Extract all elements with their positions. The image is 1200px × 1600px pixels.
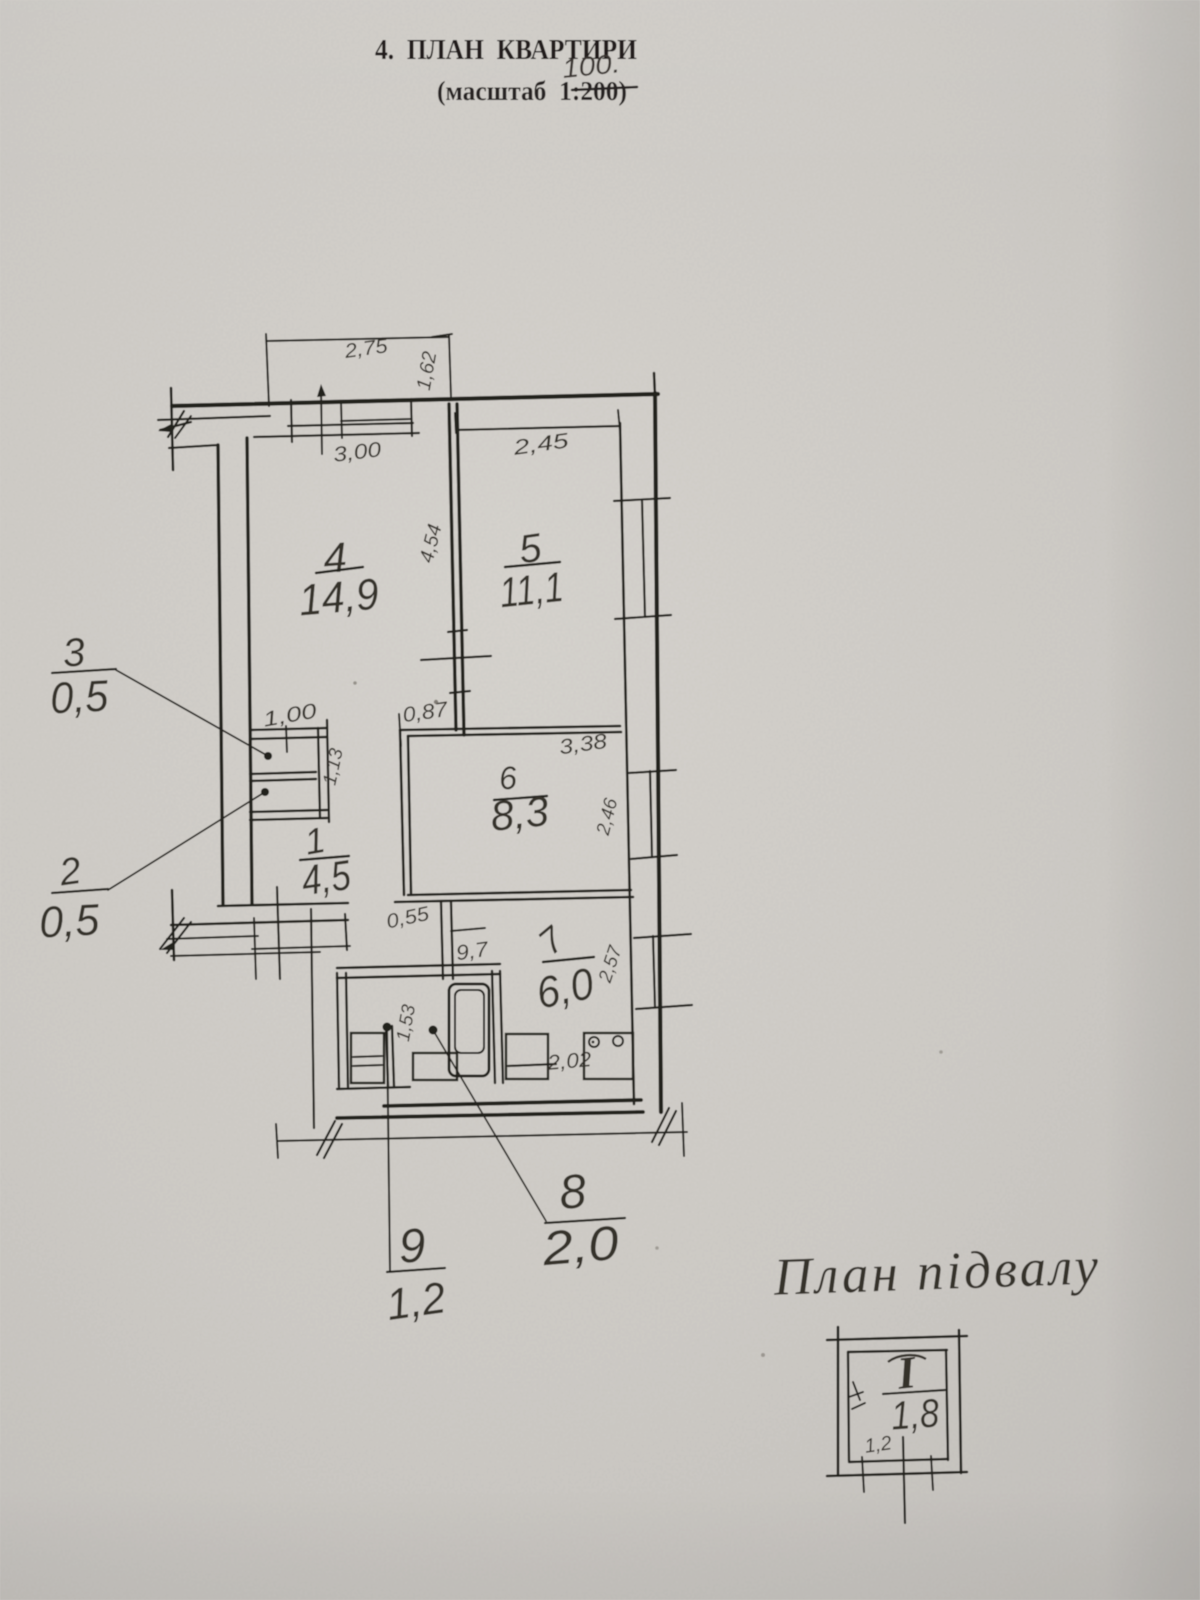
svg-text:1,2: 1,2 <box>383 1273 448 1330</box>
svg-text:2,02: 2,02 <box>545 1048 592 1075</box>
svg-text:(масштаб 1:200): (масштаб 1:200) <box>437 76 627 106</box>
svg-text:8,3: 8,3 <box>488 787 551 840</box>
svg-text:1,8: 1,8 <box>890 1391 942 1438</box>
svg-text:2,0: 2,0 <box>539 1217 621 1277</box>
svg-text:4,5: 4,5 <box>298 851 354 904</box>
svg-text:0,5: 0,5 <box>49 672 110 724</box>
svg-text:0,5: 0,5 <box>38 895 101 947</box>
svg-text:9,7: 9,7 <box>455 938 491 965</box>
svg-text:8: 8 <box>557 1165 589 1220</box>
svg-text:11,1: 11,1 <box>497 563 566 616</box>
svg-text:1,2: 1,2 <box>863 1432 893 1458</box>
svg-text:100.: 100. <box>561 48 622 84</box>
svg-text:3: 3 <box>61 630 87 676</box>
svg-text:14,9: 14,9 <box>297 570 381 626</box>
svg-text:План підвалу: План підвалу <box>772 1237 1102 1306</box>
svg-text:9: 9 <box>397 1219 426 1273</box>
